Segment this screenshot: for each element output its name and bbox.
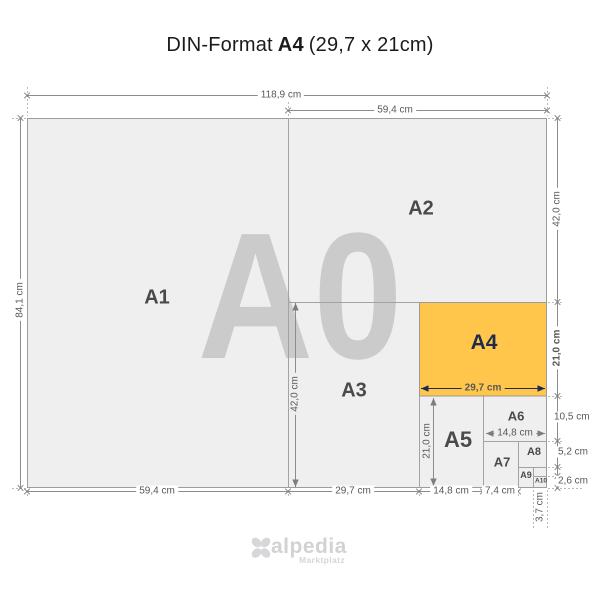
dim-a4-height: 21,0 cm xyxy=(552,327,563,370)
dim-bottom-a1-width: 59,4 cm xyxy=(136,486,178,497)
dim-a6-width: 14,8 cm xyxy=(494,428,536,439)
page-title: DIN-FormatA4(29,7 x 21cm) xyxy=(0,34,600,57)
alpedia-logo-icon xyxy=(250,536,272,560)
label-a3: A3 xyxy=(341,380,367,403)
label-a9: A9 xyxy=(520,470,532,480)
label-a2: A2 xyxy=(408,198,434,221)
title-prefix: DIN-Format xyxy=(166,34,272,56)
label-a4: A4 xyxy=(471,331,498,355)
dim-a3-height: 42,0 cm xyxy=(290,373,301,415)
alpedia-logo-tagline: Marktplatz xyxy=(299,555,345,565)
label-a1: A1 xyxy=(144,287,170,310)
dim-total-width: 118,9 cm xyxy=(258,90,304,101)
dim-a4-width: 29,7 cm xyxy=(462,383,505,394)
dim-a5-height: 21,0 cm xyxy=(422,420,433,462)
title-size: (29,7 x 21cm) xyxy=(309,34,434,56)
label-a8: A8 xyxy=(527,446,541,458)
dim-bottom-a5-width: 14,8 cm xyxy=(430,486,472,497)
dim-a2-height: 42,0 cm xyxy=(552,188,563,230)
label-a10: A10 xyxy=(535,478,547,485)
dim-a10-height: 2,6 cm xyxy=(556,476,590,487)
dim-a8-height: 5,2 cm xyxy=(556,447,590,458)
dim-a10-width: 3,7 cm xyxy=(535,489,546,525)
label-a6: A6 xyxy=(508,409,525,424)
dim-a6-height: 10,5 cm xyxy=(552,412,592,423)
label-a7: A7 xyxy=(494,455,511,470)
label-a5: A5 xyxy=(444,427,472,453)
dim-total-height: 84,1 cm xyxy=(15,279,26,321)
dim-bottom-a7-width: 7,4 cm xyxy=(482,486,518,497)
din-format-diagram: A0 xyxy=(0,0,600,600)
title-format: A4 xyxy=(278,34,304,56)
a0-watermark: A0 xyxy=(198,196,403,397)
dim-bottom-a3-width: 29,7 cm xyxy=(332,486,374,497)
dim-a2-width: 59,4 cm xyxy=(374,105,416,116)
